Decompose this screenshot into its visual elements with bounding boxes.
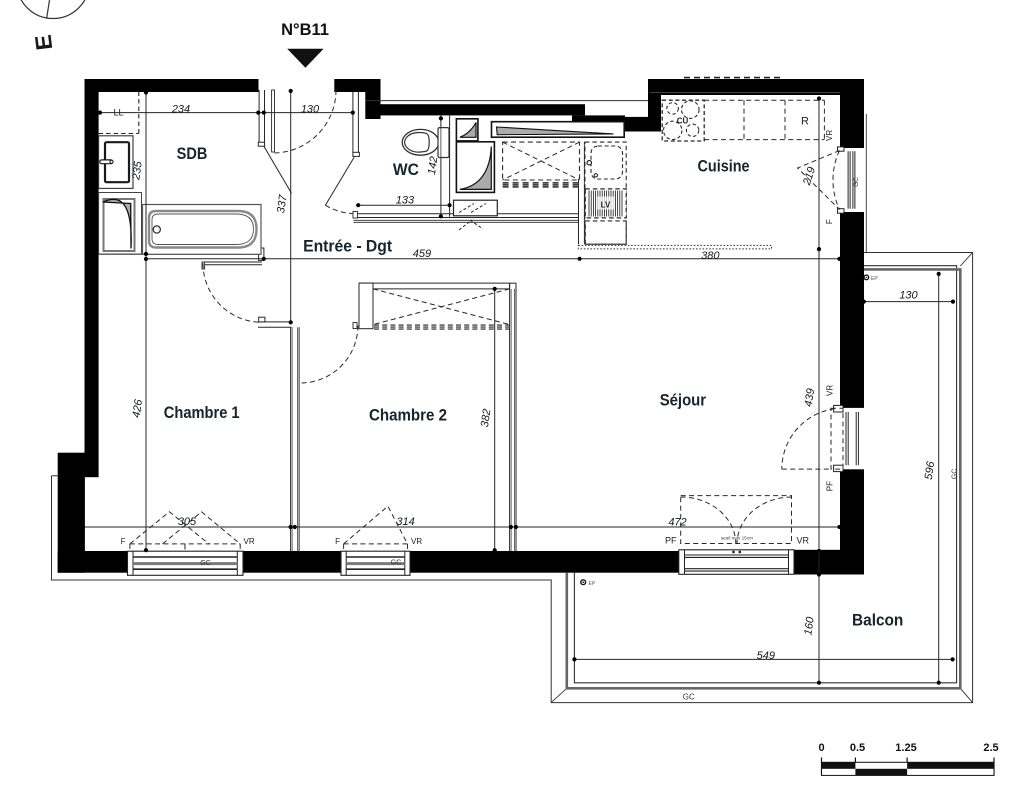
svg-text:GC: GC [952, 469, 959, 480]
svg-text:142: 142 [426, 156, 440, 176]
svg-text:130: 130 [899, 290, 918, 302]
svg-text:1.25: 1.25 [895, 742, 916, 754]
svg-text:WC: WC [393, 161, 419, 179]
svg-text:SDB: SDB [177, 145, 208, 163]
svg-text:F: F [335, 537, 340, 546]
svg-text:PF: PF [665, 536, 677, 546]
svg-text:GC: GC [391, 559, 402, 566]
svg-text:549: 549 [757, 650, 775, 662]
svg-text:N°B11: N°B11 [281, 21, 329, 39]
svg-text:314: 314 [396, 516, 414, 528]
svg-text:234: 234 [171, 103, 190, 115]
svg-text:F: F [121, 537, 126, 546]
svg-text:459: 459 [413, 248, 431, 260]
svg-text:Balcon: Balcon [852, 612, 903, 630]
svg-text:133: 133 [396, 194, 415, 206]
svg-text:EP: EP [589, 581, 596, 587]
svg-text:2.5: 2.5 [983, 742, 998, 754]
svg-text:305: 305 [178, 516, 197, 528]
svg-text:0.5: 0.5 [850, 742, 865, 754]
svg-text:Chambre 2: Chambre 2 [369, 406, 447, 424]
svg-text:0: 0 [818, 742, 824, 754]
svg-text:GC: GC [200, 560, 211, 567]
svg-text:R: R [801, 116, 809, 128]
svg-text:E: E [30, 33, 58, 51]
svg-text:LL: LL [113, 108, 123, 118]
svg-text:F: F [825, 219, 834, 224]
svg-text:VR: VR [825, 130, 834, 141]
svg-text:VR: VR [826, 385, 835, 396]
svg-text:EP: EP [871, 276, 878, 282]
svg-text:Cuisine: Cuisine [698, 158, 750, 176]
svg-text:seuil max 15cm: seuil max 15cm [721, 536, 753, 541]
svg-text:380: 380 [701, 250, 720, 262]
svg-text:VR: VR [411, 537, 422, 546]
svg-text:Chambre 1: Chambre 1 [164, 404, 240, 422]
svg-text:439: 439 [803, 388, 817, 408]
svg-text:LV: LV [601, 201, 611, 210]
svg-text:VR: VR [244, 537, 255, 546]
svg-text:PF: PF [826, 481, 835, 491]
svg-text:Séjour: Séjour [660, 392, 707, 410]
svg-text:VR: VR [797, 536, 810, 546]
svg-text:130: 130 [301, 103, 320, 115]
svg-text:382: 382 [479, 408, 493, 428]
svg-text:CU: CU [677, 116, 689, 125]
svg-text:GC: GC [853, 177, 860, 187]
svg-text:GC: GC [683, 692, 695, 701]
svg-text:Entrée - Dgt: Entrée - Dgt [303, 237, 393, 255]
svg-text:472: 472 [668, 517, 686, 529]
